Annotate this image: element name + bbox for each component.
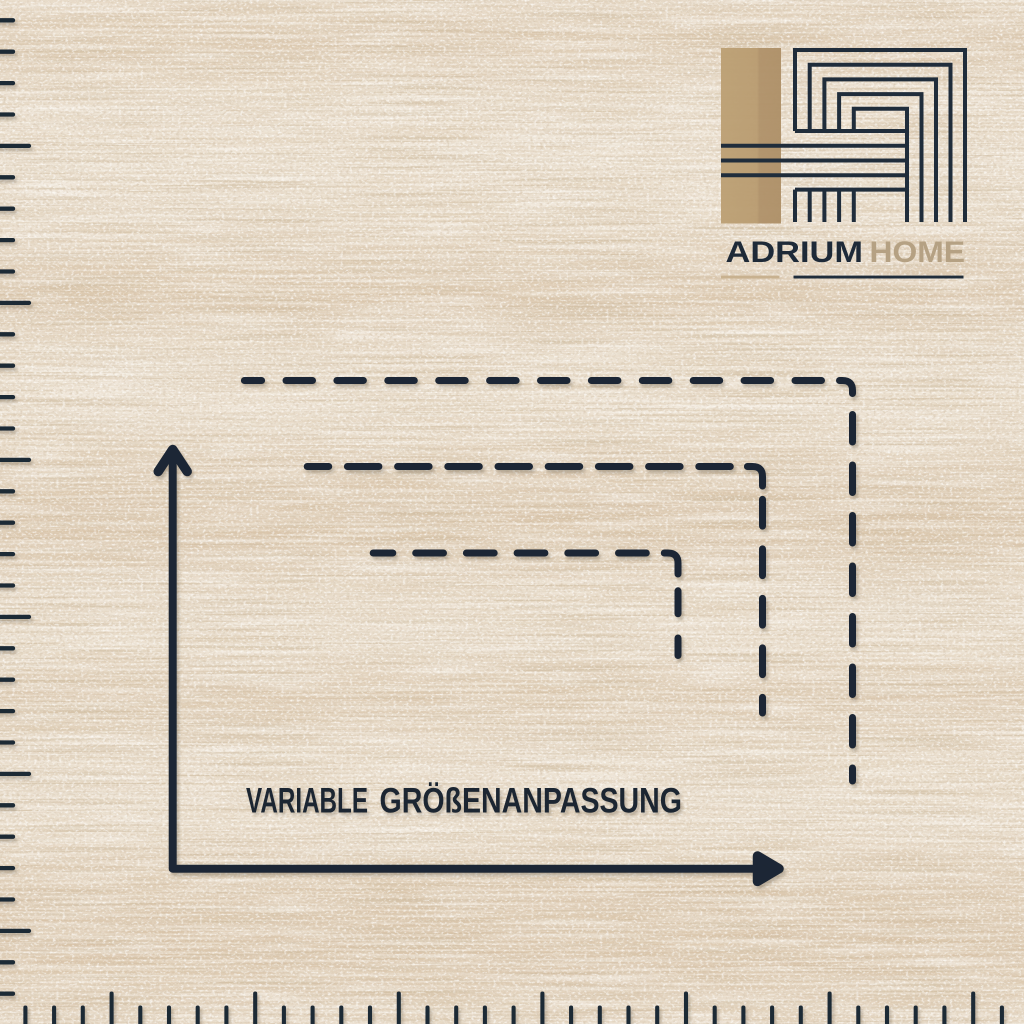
svg-text:ADRIUM: ADRIUM bbox=[726, 236, 864, 269]
svg-text:VARIABLE: VARIABLE bbox=[246, 782, 368, 821]
svg-text:GRÖßENANPASSUNG: GRÖßENANPASSUNG bbox=[380, 782, 683, 821]
svg-text:HOME: HOME bbox=[870, 236, 966, 269]
